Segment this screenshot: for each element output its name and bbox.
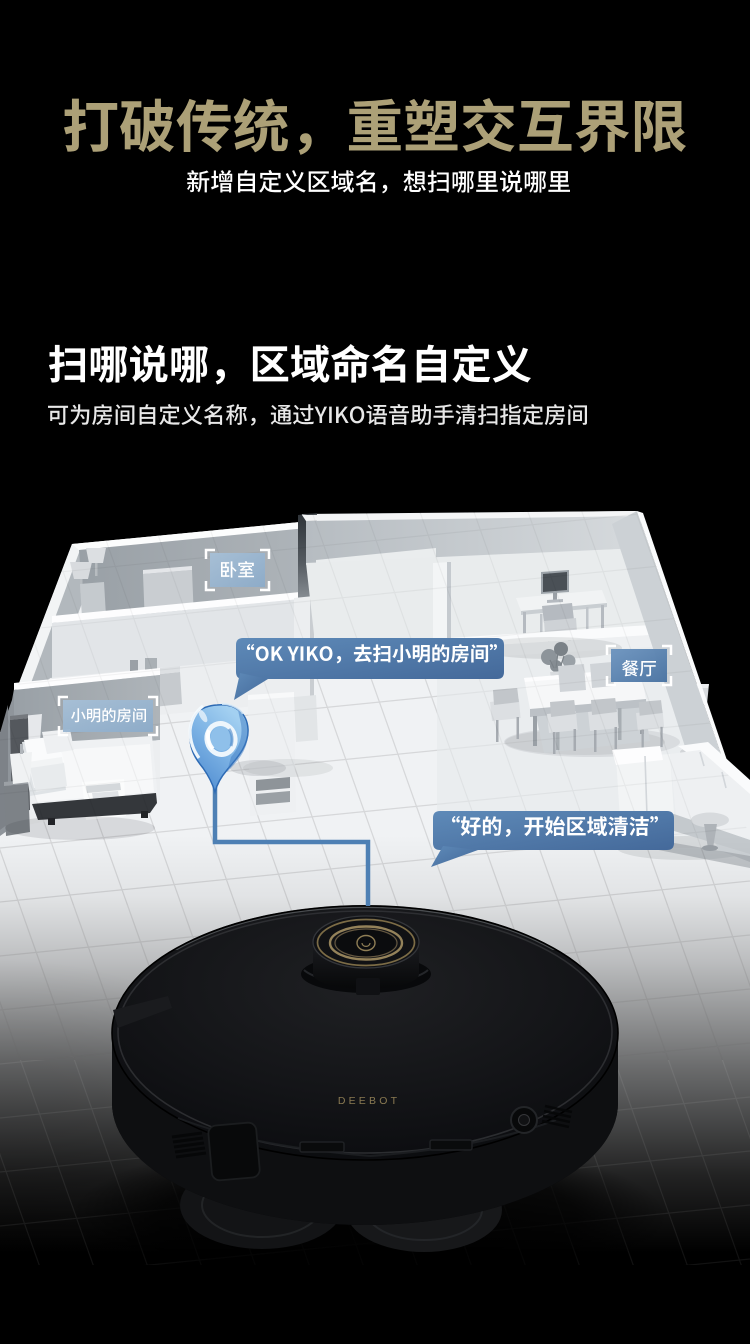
svg-text:DEEBOT: DEEBOT xyxy=(338,1095,400,1107)
